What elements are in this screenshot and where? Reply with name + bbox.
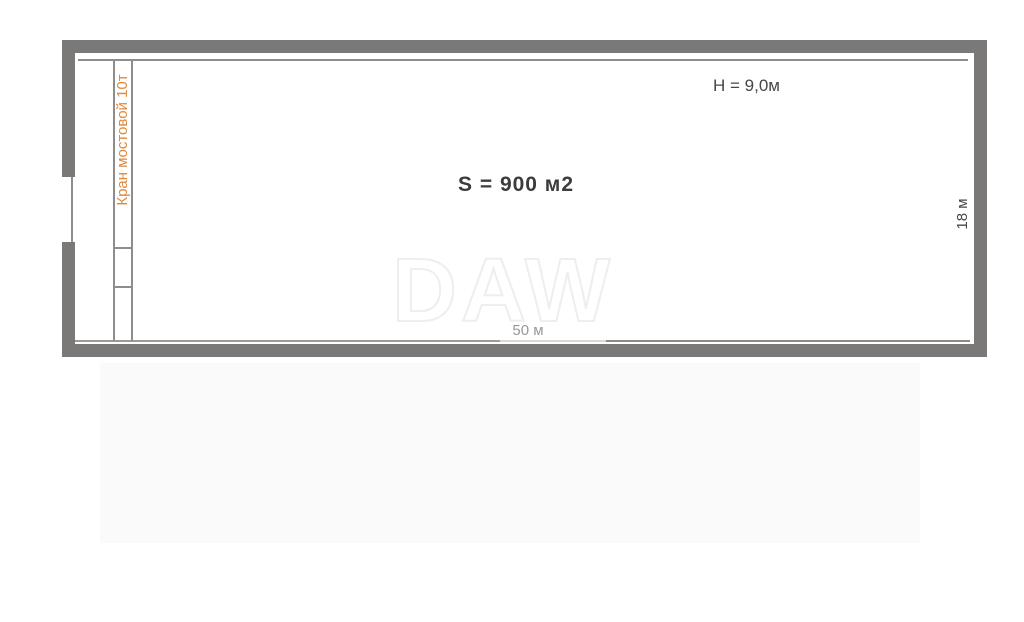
crane-rail-line-right <box>131 60 133 341</box>
left-wall-gate-opening <box>60 177 76 242</box>
crane-rail-divider-top <box>113 247 133 249</box>
crane-rail-divider-bottom <box>113 286 133 288</box>
background-shade-block <box>100 363 920 543</box>
crane-capacity-label: Кран мостовой 10т <box>115 65 131 215</box>
ceiling-height-label: H = 9,0м <box>713 76 780 96</box>
floor-area-label: S = 900 м2 <box>458 173 574 197</box>
floor-plan-canvas: DAW Кран мостовой 10т H = 9,0м S = 900 м… <box>0 0 1024 622</box>
inner-top-wall-line <box>78 59 968 61</box>
bottom-dimension-line-right <box>606 340 970 342</box>
width-dimension-label: 50 м <box>478 322 578 339</box>
depth-dimension-label: 18 м <box>955 191 971 237</box>
gate-opening-line <box>71 177 73 242</box>
